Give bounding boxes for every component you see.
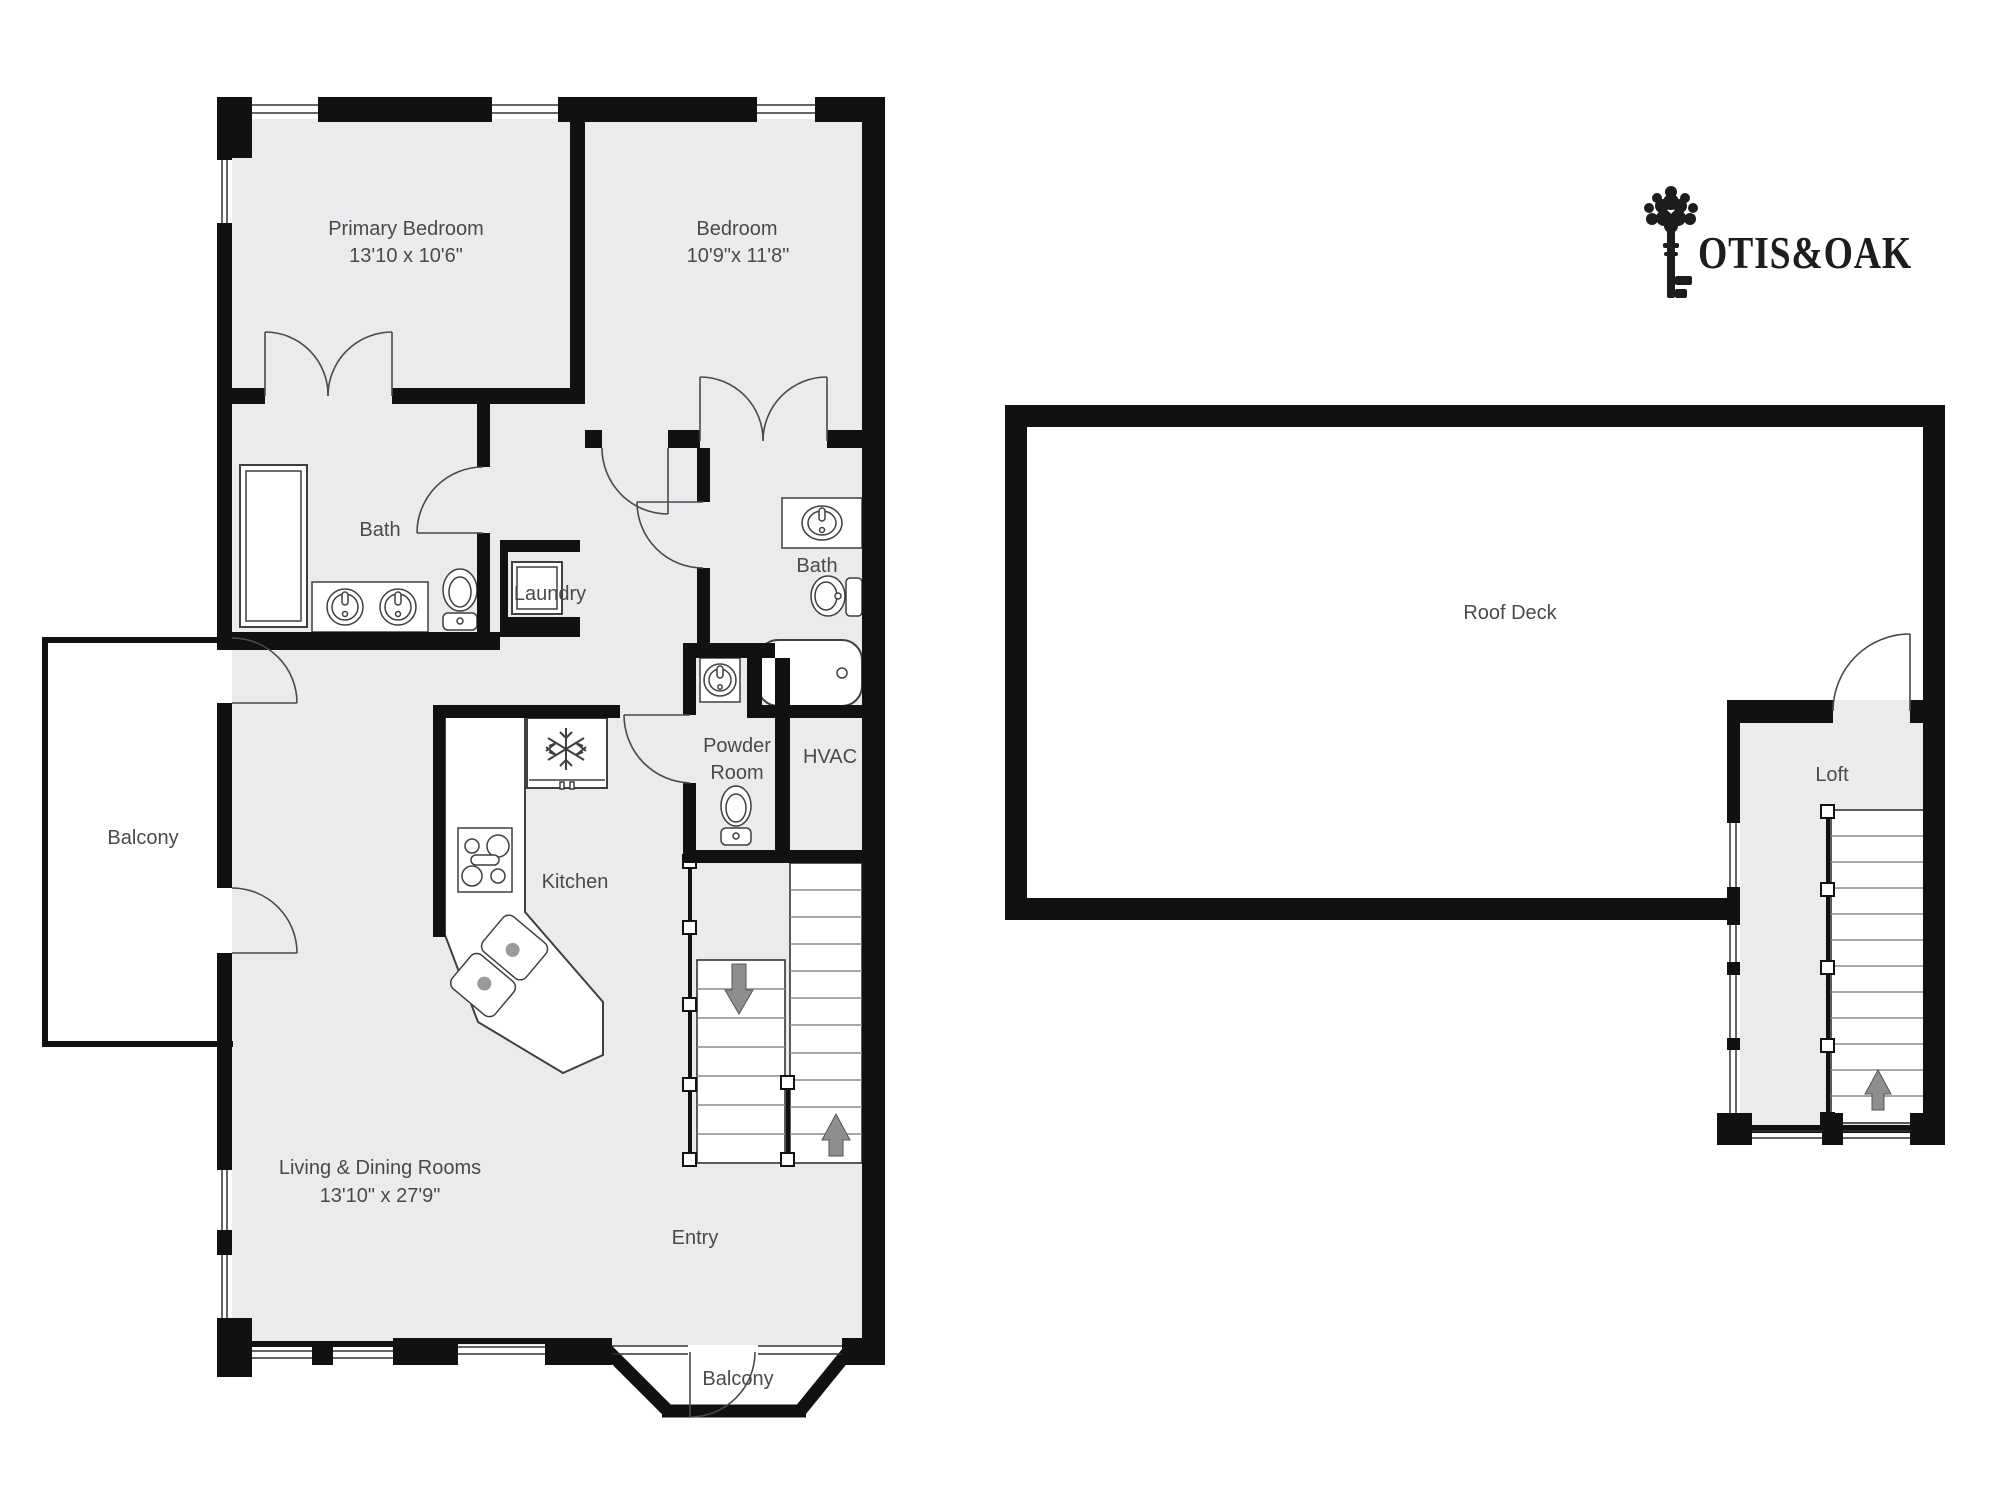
laundry-label: Laundry [514,583,586,605]
window [458,1347,545,1354]
primary-bedroom-dimensions: 13'10 x 10'6" [349,245,463,267]
window [219,1255,230,1318]
shower-inner [246,471,301,621]
window [1730,1050,1736,1113]
living-dining-dimensions: 13'10" x 27'9" [320,1185,441,1207]
window [1730,925,1736,962]
loft-staircase [1821,805,1927,1126]
door-arc [1833,634,1910,711]
main-floor-plan: Primary Bedroom 13'10 x 10'6" Bedroom 10… [42,97,885,1417]
window [757,100,815,119]
bedroom-dimensions: 10'9"x 11'8" [687,245,790,267]
window [252,1351,312,1358]
roof-level-plan: Roof Deck Loft [1005,405,1945,1145]
powder-room-label-line2: Room [710,762,763,784]
toilet-icon [721,786,751,845]
toilet-icon [443,569,477,630]
stairs-up-flight [790,863,862,1163]
window [219,1170,230,1230]
sink-icon [380,589,416,625]
floor-plan-image: Primary Bedroom 13'10 x 10'6" Bedroom 10… [0,0,2000,1500]
key-tree-logo-icon [1644,186,1698,298]
powder-room-label-line1: Powder [703,735,771,757]
window [252,100,318,119]
brand-logo: OTIS&OAK [1644,186,1912,298]
hall-bath-label: Bath [796,555,837,577]
primary-bath-label: Bath [359,519,400,541]
living-dining-label: Living & Dining Rooms [279,1157,481,1179]
sink-icon [704,664,736,696]
window [1730,823,1736,887]
window [333,1351,393,1358]
stove-icon [458,828,512,892]
balcony-front-label: Balcony [702,1368,773,1390]
balcony-side-label: Balcony [107,827,178,849]
sink-icon [327,589,363,625]
window [758,1346,842,1354]
floor-plan-page: Primary Bedroom 13'10 x 10'6" Bedroom 10… [0,0,2000,1500]
kitchen-label: Kitchen [542,871,609,893]
window [612,1346,688,1354]
brand-name: OTIS&OAK [1698,227,1912,278]
window [219,160,230,223]
primary-bedroom-label: Primary Bedroom [328,218,484,240]
window [1730,975,1736,1038]
toilet-icon [811,576,862,616]
sink-icon [802,506,842,540]
entry-label: Entry [672,1227,719,1249]
hvac-label: HVAC [803,746,857,768]
roof-deck-label: Roof Deck [1463,602,1557,624]
bedroom-label: Bedroom [696,218,777,240]
fridge-snowflake-icon [527,718,607,789]
loft-label: Loft [1815,764,1849,786]
window [492,100,558,119]
